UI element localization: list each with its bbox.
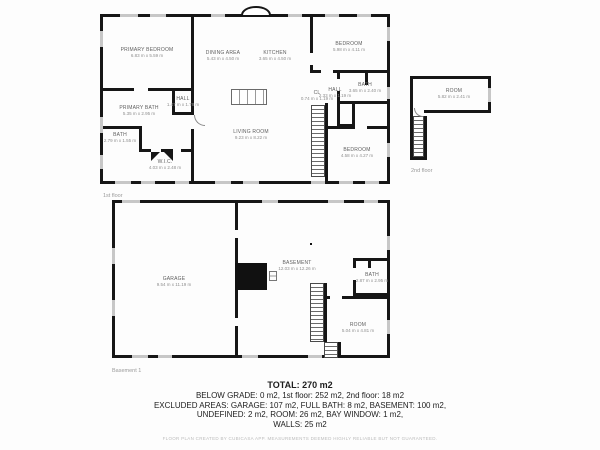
room-label-room-2f: ROOM 5.82 m x 2.41 m — [438, 88, 470, 100]
floor-plan-first: PRIMARY BEDROOM 6.83 m x 5.59 m DINING A… — [100, 14, 390, 184]
room-label-bath-1: BATH 2.79 m x 1.55 m — [104, 132, 136, 144]
window — [158, 355, 172, 358]
summary-total: TOTAL: 270 m2 — [0, 380, 600, 391]
wall — [191, 129, 194, 181]
kitchen-island — [231, 89, 267, 105]
window — [100, 155, 103, 169]
room-label-dining-area: DINING AREA 5.43 m x 4.50 m — [206, 50, 240, 62]
floor-plan-second: ROOM 5.82 m x 2.41 m 2nd floor — [410, 76, 491, 172]
door-arc — [194, 115, 205, 126]
wall — [139, 149, 151, 152]
window — [288, 14, 302, 17]
wall — [103, 126, 139, 129]
wall — [367, 126, 387, 129]
wall — [103, 88, 134, 91]
room-dims: 6.83 m x 5.59 m — [131, 53, 163, 59]
summary-line-grades: BELOW GRADE: 0 m2, 1st floor: 252 m2, 2n… — [0, 391, 600, 401]
support-post — [310, 243, 312, 245]
window — [132, 355, 148, 358]
window — [339, 181, 353, 184]
room-label-room-basement: ROOM 5.04 m x 4.81 m — [342, 322, 374, 334]
window — [211, 14, 225, 17]
window — [115, 181, 131, 184]
window — [387, 236, 390, 250]
room-label-hall-1: HALL 1.47 m x 1.78 m — [167, 96, 199, 108]
wall — [235, 238, 238, 263]
wall — [424, 110, 491, 113]
room-dims: 2.33 m x 1.19 m — [319, 93, 351, 99]
window — [488, 88, 491, 102]
window — [100, 31, 103, 47]
wall — [353, 258, 356, 268]
wall — [235, 326, 238, 358]
wall — [352, 104, 355, 126]
room-dims: 2.79 m x 1.55 m — [104, 138, 136, 144]
floor-plan-page: PRIMARY BEDROOM 6.83 m x 5.59 m DINING A… — [0, 0, 600, 450]
window — [243, 181, 259, 184]
room-dims: 9.23 m x 8.22 m — [235, 135, 267, 141]
wall — [235, 200, 238, 230]
room-label-living-room: LIVING ROOM 9.23 m x 8.22 m — [233, 129, 269, 141]
wall — [353, 258, 390, 261]
window — [325, 14, 339, 17]
room-label-primary-bedroom: PRIMARY BEDROOM 6.83 m x 5.59 m — [121, 47, 174, 59]
window — [387, 27, 390, 41]
window — [357, 14, 371, 17]
wall — [324, 283, 327, 342]
window — [387, 87, 390, 99]
room-label-kitchen: KITCHEN 3.65 m x 4.50 m — [259, 50, 291, 62]
window — [100, 117, 103, 133]
room-dims: 2.87 m x 2.95 m — [356, 278, 388, 284]
staircase — [310, 283, 324, 342]
room-dims: 5.04 m x 4.81 m — [342, 328, 374, 334]
wall — [310, 70, 321, 73]
wall — [310, 17, 313, 53]
wall — [410, 76, 491, 79]
room-label-bedroom-2: BEDROOM 4.58 m x 4.27 m — [341, 147, 373, 159]
floor-label-second: 2nd floor — [411, 168, 432, 174]
summary-line-excluded: EXCLUDED AREAS: GARAGE: 107 m2, FULL BAT… — [0, 401, 600, 411]
window — [150, 14, 166, 17]
wall — [324, 296, 330, 299]
window — [112, 300, 115, 316]
window — [262, 200, 278, 203]
floor-label-first: 1st floor — [103, 193, 123, 199]
room-dims: 9.54 m x 11.19 m — [157, 282, 191, 288]
floor-plan-basement: GARAGE 9.54 m x 11.19 m BASEMENT 12.03 m… — [112, 200, 390, 378]
wall — [368, 258, 371, 268]
room-label-wic: W.I.C. 4.03 m x 2.48 m — [149, 159, 181, 171]
summary-line-undefined: UNDEFINED: 2 m2, ROOM: 26 m2, BAY WINDOW… — [0, 410, 600, 420]
staircase — [324, 342, 338, 358]
window — [122, 200, 140, 203]
room-dims: 12.03 m x 12.26 m — [278, 266, 315, 272]
wall — [337, 101, 387, 104]
window — [175, 181, 189, 184]
room-dims: 4.58 m x 4.27 m — [341, 153, 373, 159]
room-dims: 5.43 m x 4.50 m — [207, 56, 239, 62]
room-label-basement: BASEMENT 12.03 m x 12.26 m — [278, 260, 315, 272]
window — [387, 143, 390, 157]
window — [387, 320, 390, 334]
staircase — [311, 105, 325, 177]
wall — [337, 73, 340, 79]
wall — [338, 342, 341, 358]
window — [365, 181, 379, 184]
window — [308, 355, 322, 358]
window — [215, 181, 231, 184]
room-dims: 5.98 m x 4.11 m — [333, 47, 365, 53]
room-label-bedroom-1: BEDROOM 5.98 m x 4.11 m — [333, 41, 365, 53]
window — [120, 14, 138, 17]
wall — [148, 88, 194, 91]
wall — [235, 290, 238, 318]
room-dims: 1.47 m x 1.78 m — [167, 102, 199, 108]
wall — [112, 200, 390, 203]
wall — [410, 157, 427, 160]
wall — [325, 126, 355, 129]
window — [364, 200, 378, 203]
utility-fixture — [269, 271, 277, 281]
summary-line-walls: WALLS: 25 m2 — [0, 420, 600, 430]
room-dims: 3.65 m x 4.50 m — [259, 56, 291, 62]
room-label-bath-basement: BATH 2.87 m x 2.95 m — [356, 272, 388, 284]
window — [141, 181, 155, 184]
wall — [342, 296, 390, 299]
wall — [325, 103, 328, 181]
staircase — [413, 116, 424, 157]
window — [328, 200, 344, 203]
room-dims: 4.03 m x 2.48 m — [149, 165, 181, 171]
window — [112, 248, 115, 264]
room-label-bath-2: BATH 3.65 m x 2.40 m — [349, 82, 381, 94]
disclaimer-text: FLOOR PLAN CREATED BY CUBICASA APP. MEAS… — [0, 436, 600, 441]
room-label-garage: GARAGE 9.54 m x 11.19 m — [157, 276, 191, 288]
room-dims: 5.82 m x 2.41 m — [438, 94, 470, 100]
room-label-hall-2: HALL 2.33 m x 1.19 m — [319, 87, 351, 99]
floor-label-basement: Basement 1 — [112, 368, 141, 374]
room-dims: 3.65 m x 2.40 m — [349, 88, 381, 94]
chimney-block — [235, 263, 267, 290]
wall — [333, 70, 387, 73]
room-label-primary-bath: PRIMARY BATH 5.35 m x 2.95 m — [119, 105, 158, 117]
window — [242, 355, 258, 358]
wall — [191, 17, 194, 91]
room-dims: 5.35 m x 2.95 m — [123, 111, 155, 117]
wall — [112, 200, 115, 358]
bay-window — [241, 6, 271, 15]
area-summary: TOTAL: 270 m2 BELOW GRADE: 0 m2, 1st flo… — [0, 380, 600, 441]
window — [311, 181, 325, 184]
wall — [424, 116, 427, 157]
